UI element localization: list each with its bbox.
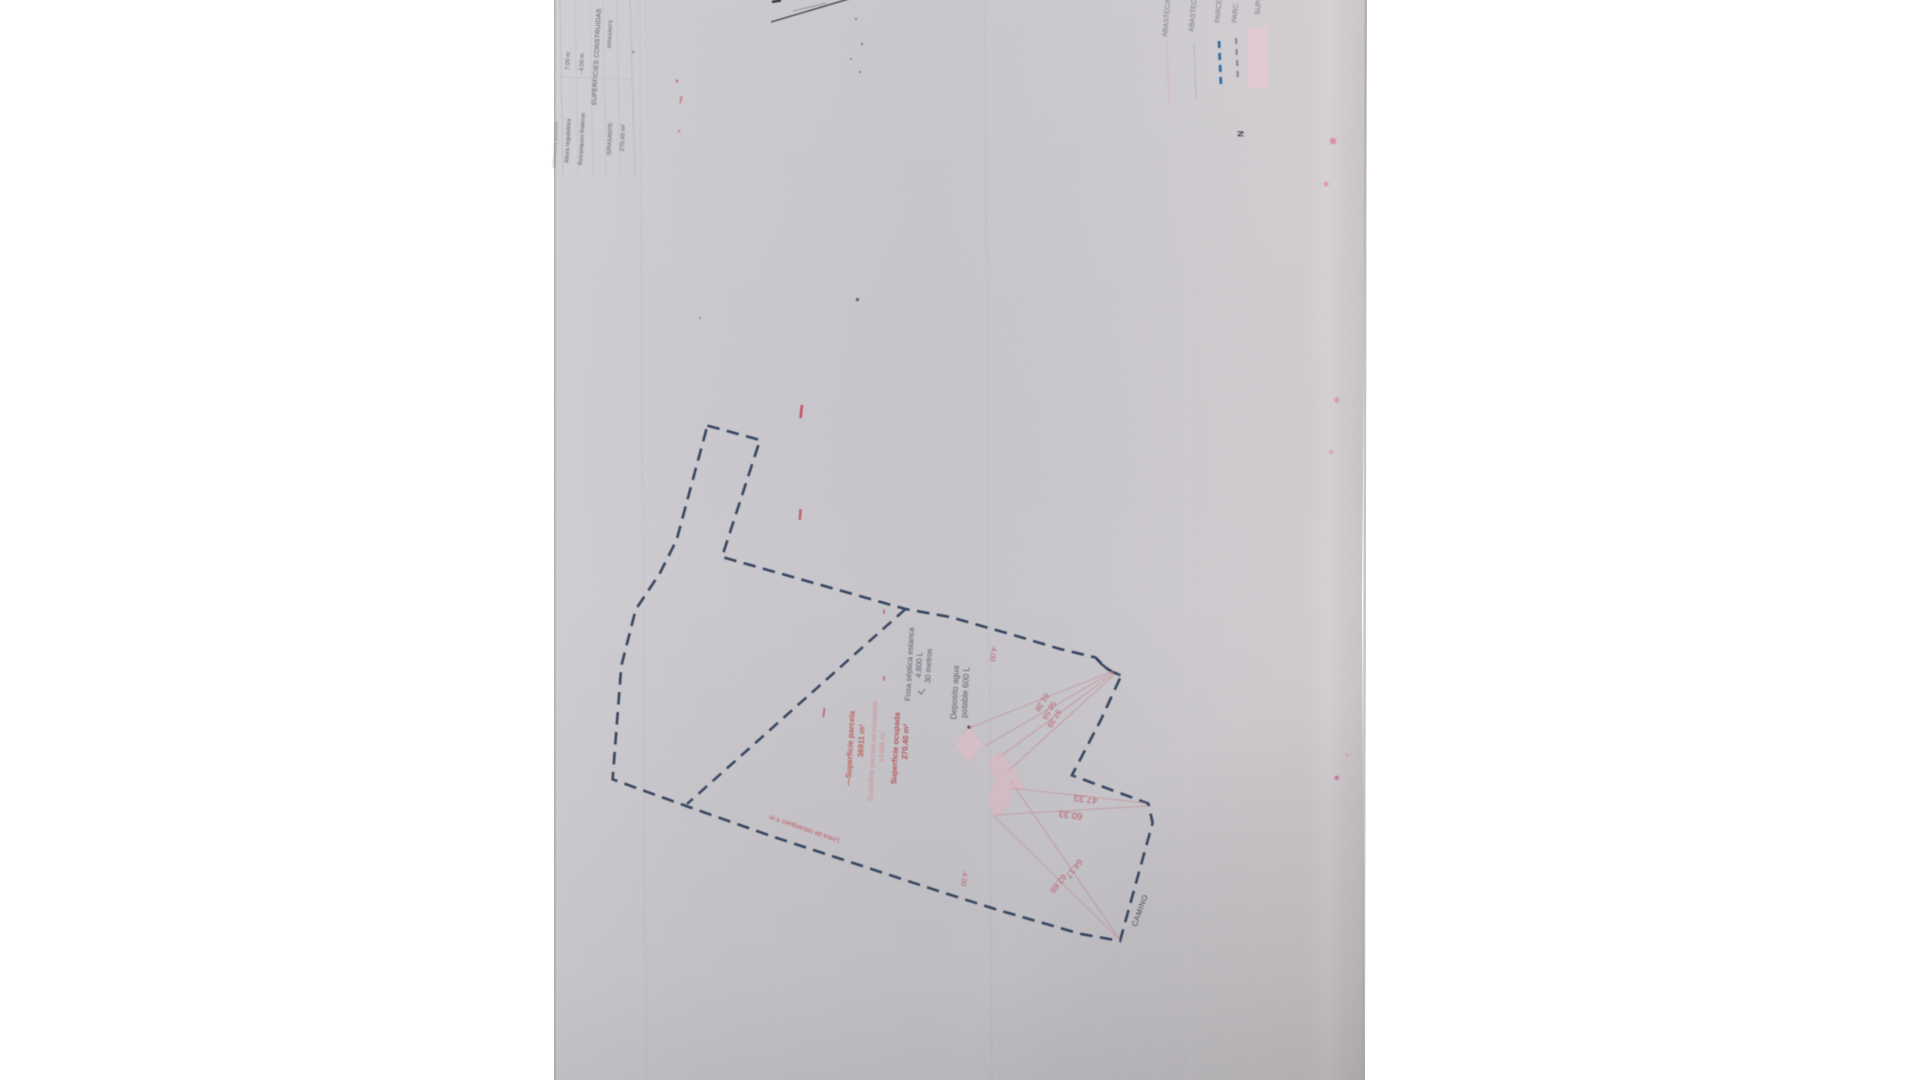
svg-text:36911 m²: 36911 m² [856, 724, 867, 758]
svg-text:N: N [1235, 131, 1245, 137]
svg-text:+: + [629, 49, 638, 54]
svg-text:14489 m²: 14489 m² [877, 731, 888, 762]
svg-text:270.40 m²: 270.40 m² [900, 723, 911, 759]
svg-text:7.00 m: 7.00 m [565, 52, 572, 70]
svg-text:- 4.00 m: - 4.00 m [579, 53, 586, 75]
svg-text:SUP.: SUP. [1255, 0, 1263, 15]
svg-text:30 metros: 30 metros [923, 648, 934, 683]
